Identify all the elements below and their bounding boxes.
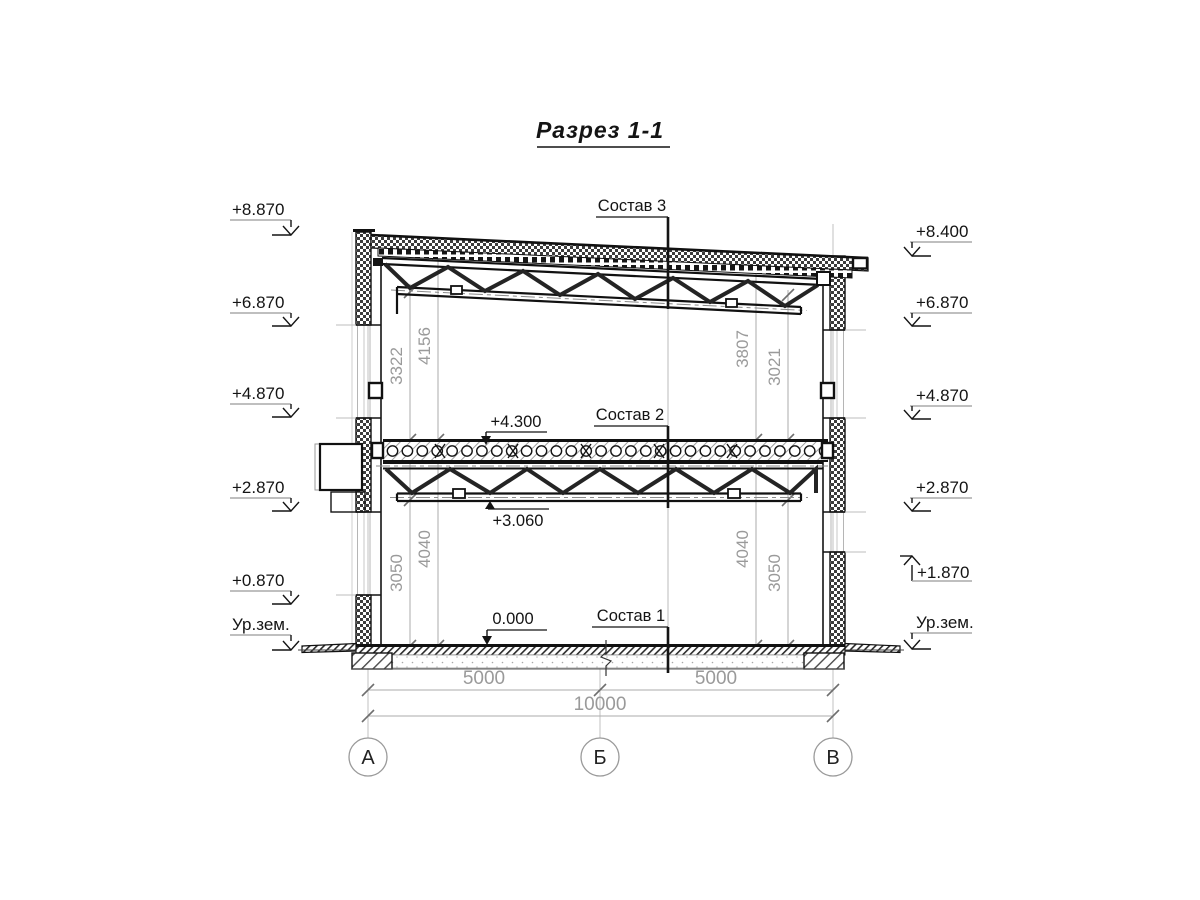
axis-bubbles: А Б В — [349, 738, 852, 776]
right-apron — [845, 644, 900, 653]
elev-right-8400: +8.400 — [904, 222, 972, 256]
right-wall-panel-middle — [830, 418, 845, 512]
level-0000-arrow — [482, 636, 492, 645]
callout-sostav1-label: Состав 1 — [597, 607, 665, 625]
lower-truss — [376, 463, 828, 501]
dim-lower-left-outer: 4040 — [415, 530, 434, 568]
level-4300-label: +4.300 — [491, 413, 542, 431]
roof-edge-box — [853, 258, 867, 269]
upper-truss-clip-left — [451, 286, 462, 294]
elev-left-0870: +0.870 — [230, 571, 299, 604]
dim-upper-right-inner: 3807 — [733, 330, 752, 368]
level-3060-label: +3.060 — [493, 512, 544, 530]
dim-total: 10000 — [574, 694, 627, 715]
axis-label-a: А — [361, 747, 375, 769]
elev-right-4870-label: +4.870 — [916, 386, 968, 405]
level-0000-label: 0.000 — [492, 610, 533, 628]
ground-floor — [298, 640, 904, 676]
elev-left-2870: +2.870 — [230, 478, 299, 511]
lower-truss-clip-right — [728, 489, 740, 498]
dim-lower-left-inner: 3050 — [387, 554, 406, 592]
elev-left-2870-label: +2.870 — [232, 478, 284, 497]
axis-label-b: Б — [593, 747, 606, 769]
right-foundation — [804, 653, 844, 669]
left-wall-panel-bottom — [356, 595, 371, 648]
elev-left-6870: +6.870 — [230, 293, 299, 326]
dim-upper-left-outer: 4156 — [415, 327, 434, 365]
roof-assembly — [371, 235, 868, 278]
callout-sostav3: Состав 3 — [596, 197, 668, 426]
dim-span-right: 5000 — [695, 668, 737, 689]
elev-left-4870: +4.870 — [230, 384, 299, 417]
elev-right-2870: +2.870 — [904, 478, 972, 511]
right-wall-panel-bottom — [830, 552, 845, 648]
elev-left-ground-label: Ур.зем. — [232, 615, 290, 634]
upper-truss-left-bearing — [373, 258, 383, 266]
lower-truss-clip-left — [453, 489, 465, 498]
right-level-stubs — [845, 330, 866, 552]
dim-upper-right-outer: 3021 — [765, 348, 784, 386]
elev-right-4870: +4.870 — [904, 386, 972, 419]
elevation-marks-left: +8.870 +6.870 +4.870 +2.870 — [230, 200, 299, 650]
callout-sostav2-label: Состав 2 — [596, 406, 664, 424]
axis-label-v: В — [826, 747, 839, 769]
drawing-sheet: Разрез 1-1 3322 4156 3807 3021 3050 4040… — [0, 0, 1200, 900]
elev-left-8870-label: +8.870 — [232, 200, 284, 219]
elev-left-0870-label: +0.870 — [232, 571, 284, 590]
upper-truss-clip-right — [726, 299, 737, 307]
floor-screed-band — [356, 646, 845, 655]
elev-left-6870-label: +6.870 — [232, 293, 284, 312]
dim-span-left: 5000 — [463, 668, 505, 689]
upper-truss-right-bearing — [817, 272, 830, 285]
elev-left-4870-label: +4.870 — [232, 384, 284, 403]
section-drawing: Разрез 1-1 3322 4156 3807 3021 3050 4040… — [0, 0, 1200, 900]
elev-right-6870-label: +6.870 — [916, 293, 968, 312]
slab-left-bearing — [372, 443, 383, 458]
elev-right-1870: +1.870 — [900, 556, 972, 582]
elev-left-ground: Ур.зем. — [230, 615, 299, 650]
elev-right-ground: Ур.зем. — [904, 613, 974, 649]
left-wall-clip — [369, 383, 382, 398]
elev-right-6870: +6.870 — [904, 293, 972, 326]
drawing-title: Разрез 1-1 — [536, 117, 664, 143]
dim-lower-right-outer: 3050 — [765, 554, 784, 592]
right-wall-clip — [821, 383, 834, 398]
title-block: Разрез 1-1 — [536, 117, 670, 147]
floor-subbase-band — [392, 655, 804, 668]
elev-left-8870: +8.870 — [230, 200, 299, 235]
elev-right-8400-label: +8.400 — [916, 222, 968, 241]
left-apron — [302, 644, 356, 653]
left-foundation — [352, 653, 392, 669]
left-wall-panel-top — [356, 232, 371, 325]
dim-upper-left-inner: 3322 — [387, 347, 406, 385]
lower-truss-diagonals — [386, 469, 816, 493]
slab-right-bearing — [822, 443, 833, 458]
elev-right-1870-label: +1.870 — [917, 563, 969, 582]
elevation-marks-right: +8.400 +6.870 +4.870 +2.870 — [900, 222, 974, 649]
elev-right-2870-label: +2.870 — [916, 478, 968, 497]
left-wall — [315, 231, 382, 649]
callout-sostav3-label: Состав 3 — [598, 197, 666, 215]
left-console — [320, 444, 362, 490]
dim-lower-right-inner: 4040 — [733, 530, 752, 568]
floor-slab — [372, 441, 833, 462]
callout-level-0000: 0.000 — [482, 610, 547, 645]
level-3060-arrow — [485, 501, 495, 509]
callout-level-3060: +3.060 — [485, 501, 549, 530]
elev-right-ground-label: Ур.зем. — [916, 613, 974, 632]
